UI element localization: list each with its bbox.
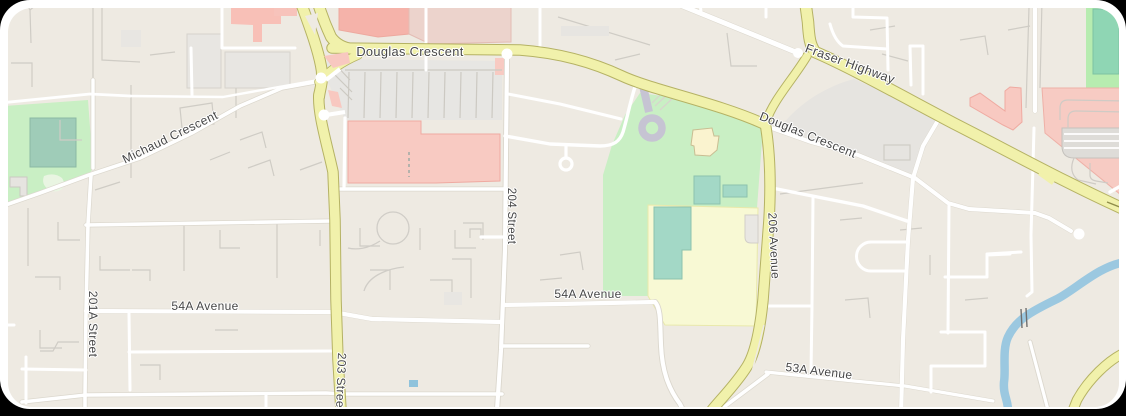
svg-text:54A Avenue: 54A Avenue — [171, 299, 238, 313]
svg-text:203 Street: 203 Street — [333, 352, 349, 407]
svg-text:54A Avenue: 54A Avenue — [554, 287, 621, 301]
svg-text:201A Street: 201A Street — [86, 291, 100, 358]
svg-text:204 Street: 204 Street — [505, 188, 517, 245]
svg-text:Douglas Crescent: Douglas Crescent — [356, 44, 463, 59]
